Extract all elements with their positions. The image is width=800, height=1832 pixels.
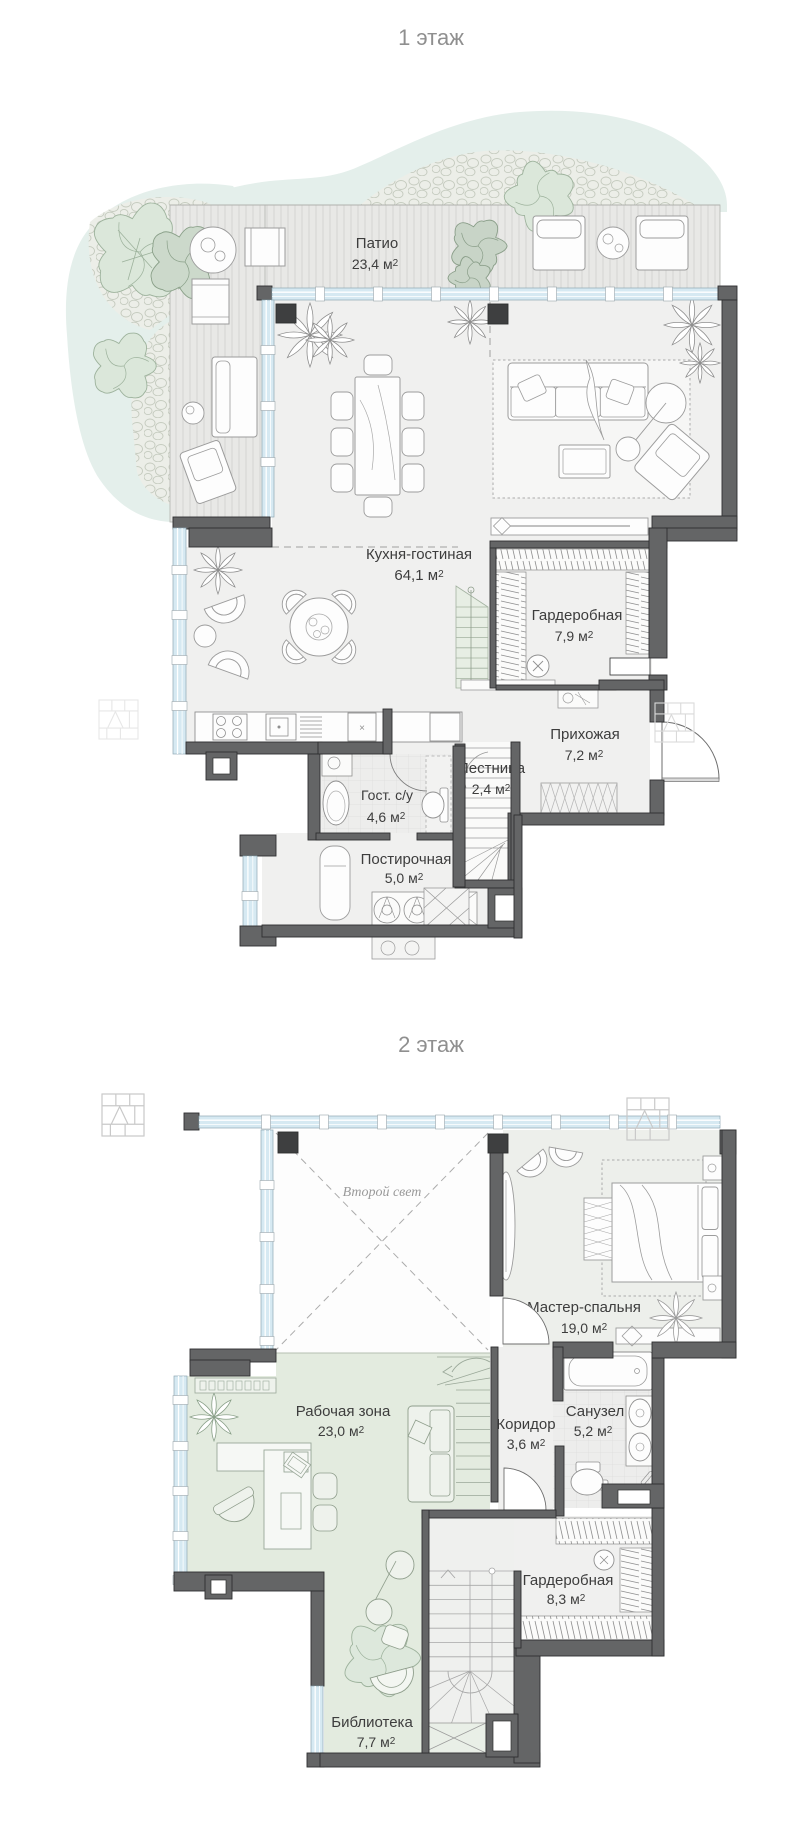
svg-text:23,4 м2: 23,4 м2 [352,256,399,272]
svg-text:Кухня-гостиная: Кухня-гостиная [366,546,472,563]
svg-text:Рабочая зона: Рабочая зона [296,1403,391,1420]
svg-text:Гардеробная: Гардеробная [523,1572,614,1589]
svg-text:Постирочная: Постирочная [361,851,452,868]
svg-text:2 этаж: 2 этаж [398,1032,464,1057]
svg-text:×: × [359,723,365,734]
svg-text:23,0 м2: 23,0 м2 [318,1423,365,1439]
svg-text:Гост. с/у: Гост. с/у [361,787,413,803]
svg-text:1 этаж: 1 этаж [398,25,464,50]
svg-text:Второй свет: Второй свет [343,1185,422,1200]
svg-text:Мастер-спальня: Мастер-спальня [527,1299,641,1316]
svg-text:Патио: Патио [356,235,398,252]
svg-text:19,0 м2: 19,0 м2 [561,1320,608,1336]
svg-text:64,1 м2: 64,1 м2 [394,567,444,584]
svg-text:Гардеробная: Гардеробная [532,607,623,624]
svg-text:Санузел: Санузел [566,1403,624,1420]
svg-text:Прихожая: Прихожая [550,726,620,743]
svg-text:Библиотека: Библиотека [331,1714,413,1731]
svg-text:Коридор: Коридор [496,1416,555,1433]
